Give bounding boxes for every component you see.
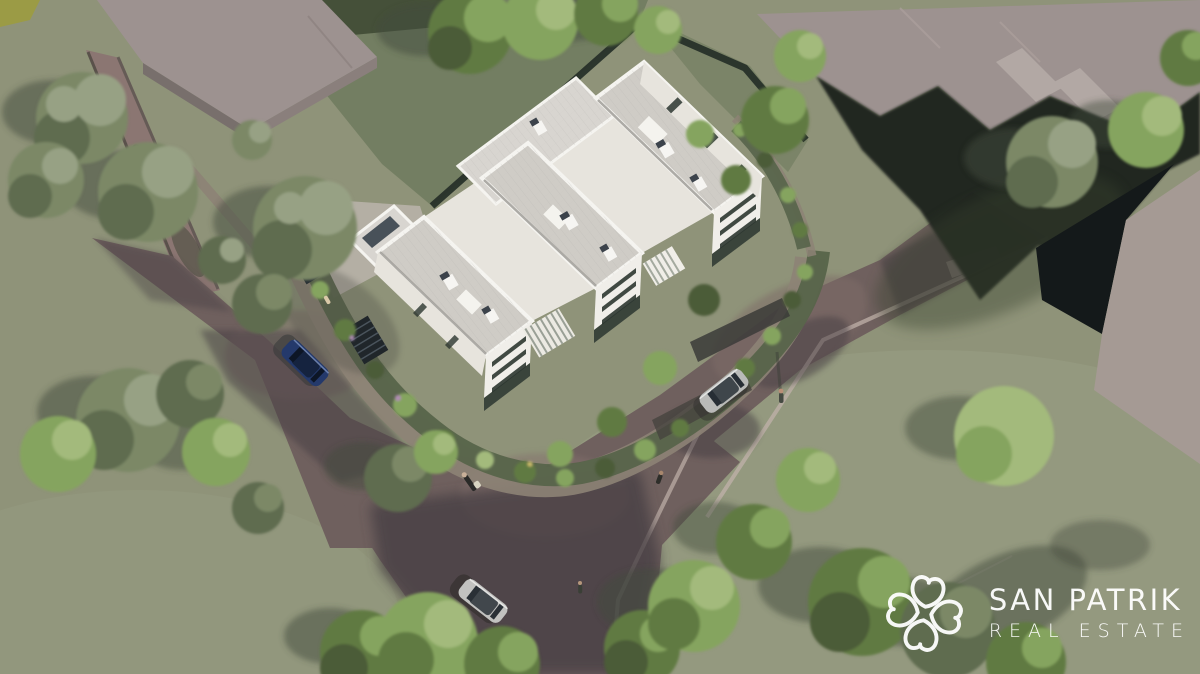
tree — [156, 360, 224, 428]
brand-subtitle: REAL ESTATE — [989, 620, 1190, 643]
tree — [232, 120, 272, 160]
pedestrian-bottom-road — [578, 581, 582, 594]
tree — [198, 236, 246, 284]
tree — [98, 142, 198, 242]
tree — [414, 430, 458, 474]
clover-logo-icon — [876, 565, 973, 662]
tree — [182, 418, 250, 486]
tree — [1006, 116, 1098, 208]
tree — [741, 86, 809, 154]
tree — [8, 142, 84, 218]
tree — [634, 6, 682, 54]
tree — [648, 560, 740, 652]
tree — [232, 482, 284, 534]
tree — [1108, 92, 1184, 168]
tree — [776, 448, 840, 512]
brand-watermark: SAN PATRIK REAL ESTATE — [876, 565, 1194, 662]
render-canvas: SAN PATRIK REAL ESTATE — [0, 0, 1200, 674]
tree — [20, 416, 96, 492]
tree — [716, 504, 792, 580]
tree — [954, 386, 1054, 486]
tree — [232, 274, 292, 334]
brand-name: SAN PATRIK — [989, 585, 1182, 617]
tree — [774, 30, 826, 82]
